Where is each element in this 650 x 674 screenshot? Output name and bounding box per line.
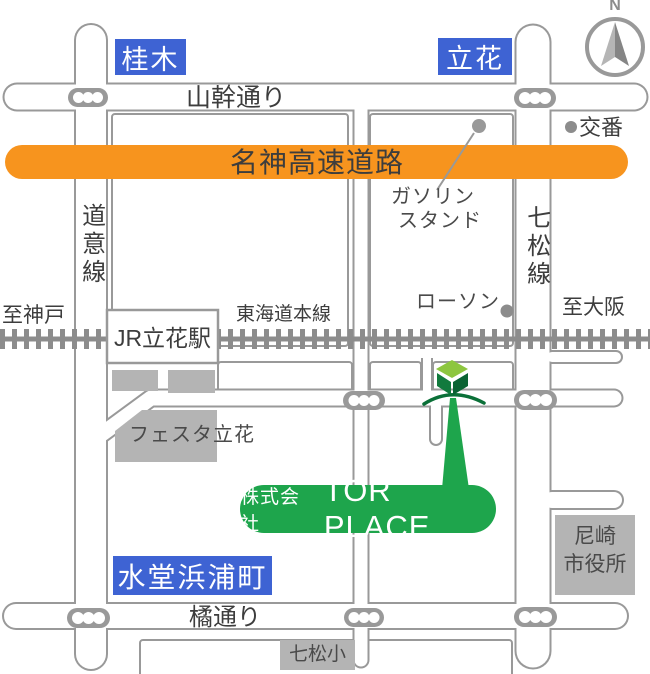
koban-dot [565, 121, 577, 133]
traffic-light-yamakan-nanamatsu [514, 88, 556, 108]
area-katsuragi: 桂木 [115, 39, 186, 75]
traffic-light-tachibanadori-nanamatsu [514, 607, 557, 627]
map-canvas [0, 0, 650, 674]
access-map: N 桂木 立花 山幹通り 交番 名神高速道路 ガソリン スタンド 道意線 七松線… [0, 0, 650, 674]
traffic-light-tachibanadori-central [344, 608, 384, 627]
traffic-light-main-central [343, 391, 385, 410]
city-hall-line2: 市役所 [555, 551, 635, 579]
landmark-label-lawson: ローソン [416, 291, 500, 314]
traffic-light-main-nanamatsu [514, 390, 557, 410]
company-name: TOR PLACE [324, 473, 496, 545]
landmark-label-festa: フェスタ立花 [129, 424, 255, 447]
direction-label-kobe: 至神戸 [2, 304, 65, 328]
landmark-label-city-hall: 尼崎 市役所 [555, 523, 635, 580]
landmark-label-jr-station: JR立花駅 [107, 325, 218, 351]
landmark-label-koban: 交番 [579, 115, 623, 140]
station-platform-left [112, 370, 158, 391]
north-label: N [604, 0, 626, 15]
landmark-label-nanamatsu-elem: 七松小 [280, 640, 355, 670]
road-label-tokaido: 東海道本線 [236, 304, 331, 326]
lawson-dot [501, 305, 514, 318]
landmark-label-gas-line2: スタンド [398, 210, 482, 233]
city-hall-line1: 尼崎 [555, 523, 635, 551]
road-label-doi-line: 道意線 [77, 203, 105, 287]
landmark-label-gas-line1: ガソリン [391, 186, 475, 209]
company-callout: 株式会社 TOR PLACE [240, 485, 496, 533]
road-label-tachibana-dori: 橘通り [189, 604, 261, 632]
area-suido-hamaura: 水堂浜浦町 [113, 556, 272, 595]
station-platform-right [168, 370, 215, 393]
road-label-yamakan: 山幹通り [186, 84, 286, 113]
compass [587, 19, 643, 75]
traffic-light-tachibanadori-doi [67, 608, 110, 628]
road-label-meishin: 名神高速道路 [230, 147, 404, 179]
direction-label-osaka: 至大阪 [562, 296, 625, 320]
road-label-nanamatsu-line: 七松線 [522, 205, 550, 289]
company-prefix: 株式会社 [240, 482, 315, 536]
gas-station-dot [472, 119, 486, 133]
traffic-light-yamakan-doi [68, 88, 108, 107]
area-tachibana: 立花 [438, 38, 512, 75]
